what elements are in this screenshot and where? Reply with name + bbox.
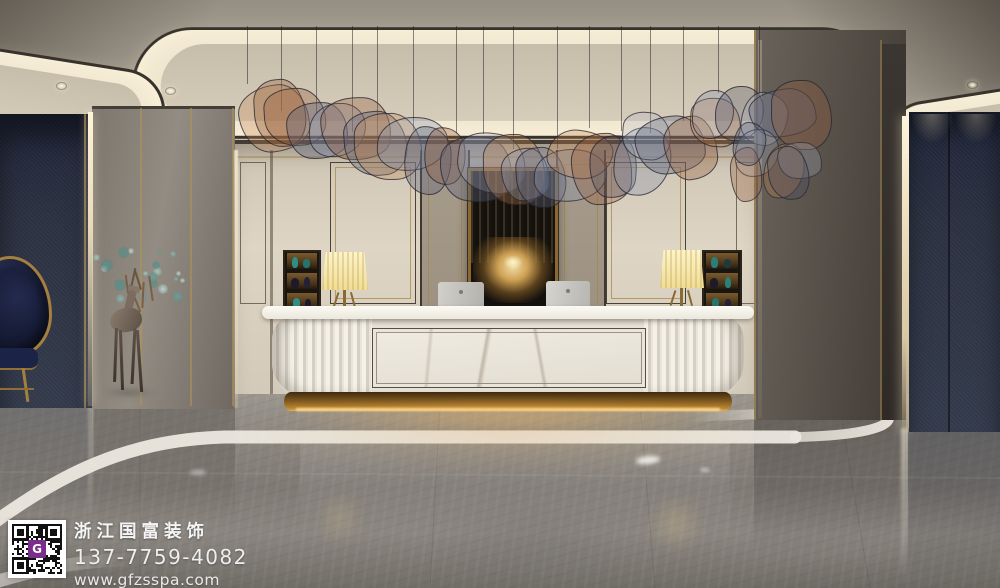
qr-module bbox=[22, 534, 24, 536]
deer-leg bbox=[113, 328, 118, 382]
qr-module bbox=[57, 553, 59, 555]
foliage-leaf bbox=[157, 250, 162, 255]
qr-module bbox=[22, 545, 24, 547]
floor-reflection-right-lightstrip bbox=[901, 428, 907, 588]
vase bbox=[291, 278, 299, 288]
vase bbox=[303, 259, 310, 268]
floor-reflection-chandelier bbox=[430, 500, 650, 570]
monitor-logo-dot bbox=[459, 290, 463, 294]
desk-countertop bbox=[262, 306, 754, 319]
desk-underglow-wide bbox=[240, 408, 780, 468]
desk-fluted-end-left bbox=[272, 314, 372, 396]
desk-fluted-end-right bbox=[644, 314, 744, 396]
qr-module bbox=[22, 550, 24, 552]
hotel-lobby-photo: G 浙江国富装饰 137-7759-4082 www.gfzsspa.com bbox=[0, 0, 1000, 588]
chandelier-wire bbox=[683, 26, 684, 121]
foliage-leaf bbox=[174, 277, 178, 281]
tree-foliage bbox=[88, 240, 198, 330]
qr-module bbox=[17, 541, 19, 543]
chandelier-wire bbox=[759, 26, 760, 94]
foliage-leaf bbox=[93, 254, 100, 261]
vase bbox=[292, 257, 298, 268]
niche-shelf bbox=[706, 273, 738, 289]
niche-shelf bbox=[287, 273, 317, 289]
vase bbox=[725, 277, 731, 288]
table-lamp-right bbox=[660, 250, 704, 310]
foliage-leaf bbox=[176, 271, 181, 276]
deer-leg bbox=[136, 330, 143, 392]
foliage-leaf bbox=[116, 294, 125, 303]
qr-module bbox=[22, 567, 24, 569]
qr-module bbox=[43, 562, 45, 564]
website-url: www.gfzsspa.com bbox=[74, 571, 324, 588]
qr-module bbox=[12, 553, 14, 555]
desk-front-marble-panel bbox=[372, 328, 646, 388]
qr-module bbox=[60, 572, 62, 574]
vase bbox=[724, 259, 731, 268]
lamp-shade bbox=[660, 250, 704, 288]
vase bbox=[304, 277, 310, 288]
chandelier-glass-panel bbox=[771, 80, 833, 151]
chair-cushion bbox=[0, 348, 38, 370]
qr-module bbox=[60, 548, 62, 550]
lamp-shade bbox=[322, 252, 368, 290]
chandelier-wire bbox=[621, 26, 622, 131]
display-niche-left bbox=[283, 250, 321, 314]
watermark: G 浙江国富装饰 137-7759-4082 www.gfzsspa.com bbox=[8, 518, 328, 582]
marble-veins bbox=[373, 329, 645, 387]
chandelier-wire bbox=[557, 26, 558, 149]
floor-reflection-navy-left bbox=[0, 400, 92, 510]
phone-number: 137-7759-4082 bbox=[74, 545, 324, 569]
floor-sparkle bbox=[190, 470, 206, 475]
floor-sparkle bbox=[700, 468, 710, 472]
foliage-leaf bbox=[101, 259, 113, 271]
deer-leg bbox=[119, 330, 124, 390]
canopy-chair bbox=[0, 256, 50, 408]
chair-leg bbox=[22, 368, 30, 402]
qr-module bbox=[57, 557, 59, 559]
qr-module bbox=[31, 564, 33, 566]
floor-reflection-left-column bbox=[92, 394, 235, 524]
vase bbox=[710, 278, 718, 288]
foliage-leaf bbox=[158, 284, 168, 294]
chandelier-wire bbox=[247, 26, 248, 84]
chandelier-wire bbox=[483, 26, 484, 134]
niche-shelf bbox=[706, 253, 738, 269]
qr-module bbox=[43, 569, 45, 571]
chair-crossbar bbox=[0, 388, 34, 390]
lamp-stem bbox=[680, 288, 683, 308]
deer-shadow bbox=[102, 388, 156, 397]
company-name: 浙江国富装饰 bbox=[74, 518, 324, 543]
artwork-gold-burst bbox=[473, 237, 553, 303]
chair-hood bbox=[0, 256, 52, 358]
chandelier-wire bbox=[589, 26, 590, 128]
foliage-leaf bbox=[170, 251, 176, 257]
qr-logo-badge: G bbox=[28, 540, 46, 558]
qr-module bbox=[26, 572, 28, 574]
chandelier-wire bbox=[456, 26, 457, 133]
qr-module bbox=[60, 564, 62, 566]
watermark-text: 浙江国富装饰 137-7759-4082 www.gfzsspa.com bbox=[74, 518, 324, 588]
foliage-leaf bbox=[172, 291, 183, 302]
chandelier-wire bbox=[513, 26, 514, 149]
vase bbox=[711, 257, 718, 268]
chandelier-wire bbox=[413, 26, 414, 130]
foliage-leaf bbox=[118, 247, 129, 258]
qr-module bbox=[52, 567, 54, 569]
display-niche-right bbox=[702, 250, 742, 314]
qr-code-icon: G bbox=[8, 520, 66, 578]
foliage-leaf bbox=[180, 278, 185, 283]
monitor-logo-dot bbox=[566, 289, 570, 293]
qr-module bbox=[52, 572, 54, 574]
floor-reflection-navy-right bbox=[908, 428, 1000, 578]
qr-module bbox=[55, 534, 57, 536]
qr-module bbox=[12, 543, 14, 545]
chandelier-art-installation bbox=[0, 0, 1000, 240]
chandelier-wire bbox=[718, 26, 719, 93]
qr-module bbox=[33, 572, 35, 574]
artwork-burst-core bbox=[503, 255, 523, 269]
lamp-branch bbox=[670, 290, 677, 306]
floor-reflection-lamp-right bbox=[650, 495, 702, 553]
table-lamp-left bbox=[322, 252, 368, 312]
foliage-leaf bbox=[152, 261, 160, 269]
foliage-leaf bbox=[114, 279, 126, 291]
deer-sculpture-with-tree bbox=[88, 240, 198, 410]
niche-shelf bbox=[287, 253, 317, 269]
lamp-branch bbox=[687, 290, 693, 306]
qr-module bbox=[48, 560, 50, 562]
